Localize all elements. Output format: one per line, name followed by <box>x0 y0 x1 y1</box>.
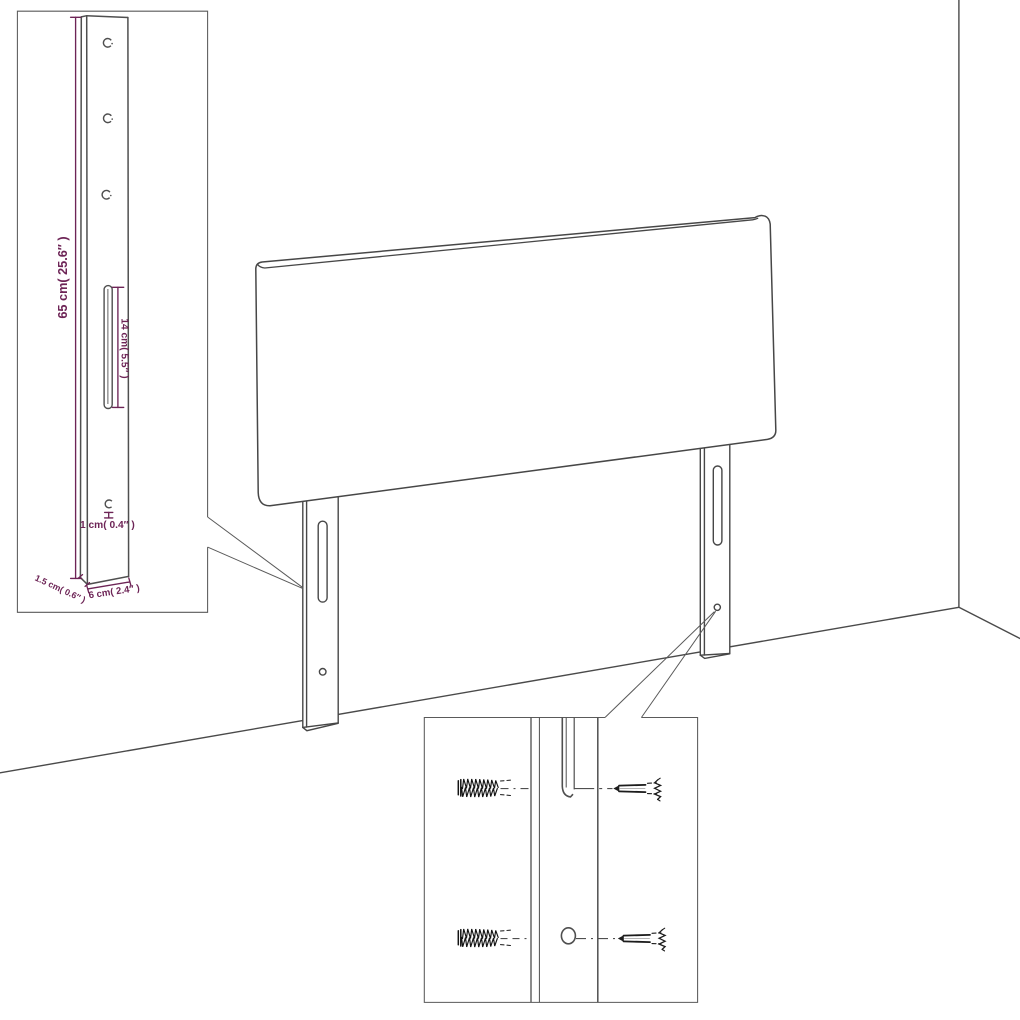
svg-text:65 cm( 25.6″ ): 65 cm( 25.6″ ) <box>56 236 70 318</box>
svg-text:1 cm( 0.4″ ): 1 cm( 0.4″ ) <box>80 520 135 531</box>
svg-text:14 cm( 5.5″ ): 14 cm( 5.5″ ) <box>119 318 130 378</box>
